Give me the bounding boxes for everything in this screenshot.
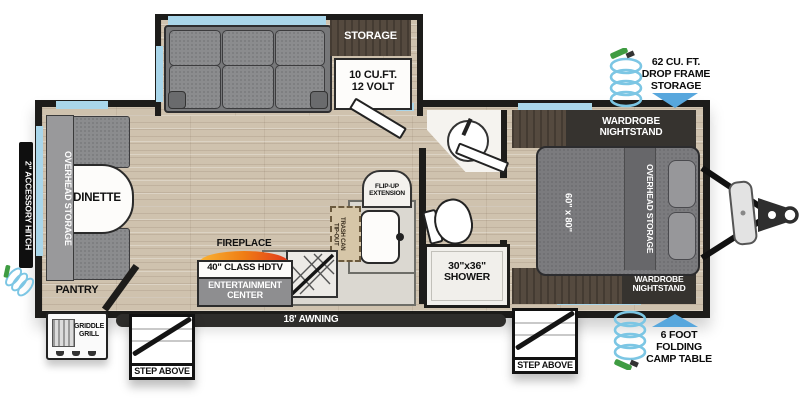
- flip-up-extension: FLIP-UP EXTENSION: [362, 170, 412, 208]
- arrow-up-icon: [652, 314, 698, 328]
- bedroom-dresser-top: [512, 110, 566, 148]
- drop-frame-label-3: STORAGE: [634, 81, 718, 93]
- entry-door-swing: [132, 316, 192, 356]
- ent-center-label-2: CENTER: [199, 291, 291, 301]
- faucet-icon: [462, 118, 473, 136]
- window: [168, 16, 326, 25]
- drop-frame-label-2: DROP FRAME: [634, 69, 718, 81]
- entertainment-center: ENTERTAINMENT CENTER: [197, 277, 293, 307]
- pillow: [668, 212, 696, 260]
- stove: [286, 250, 338, 298]
- refrigerator: 10 CU.FT. 12 VOLT: [334, 58, 412, 110]
- storage-label: STORAGE: [330, 31, 411, 43]
- flipup-label-2: EXTENSION: [364, 190, 410, 197]
- faucet-icon: [396, 233, 404, 241]
- window: [56, 101, 108, 109]
- kitchen-sink: [360, 210, 400, 264]
- griddle-knob: [56, 351, 64, 356]
- coiled-hose-icon: [2, 262, 42, 306]
- dinette-bench: [70, 228, 130, 280]
- dinette-bench: [70, 116, 130, 168]
- accessory-hitch-label: 2" ACCESSORY HITCH: [20, 144, 33, 266]
- drop-frame-label-1: 62 CU. FT.: [634, 57, 718, 69]
- dinette-overhead-label: OVERHEAD STORAGE: [48, 118, 72, 278]
- wardrobe-top-label-2: NIGHTSTAND: [566, 128, 696, 139]
- sofa-armrest: [168, 91, 186, 109]
- entry-door-swing: [515, 310, 575, 350]
- bed: 60" x 80" OVERHEAD STORAGE: [536, 146, 700, 276]
- entry-step: STEP ABOVE: [129, 314, 195, 380]
- fireplace-label: FIREPLACE: [208, 239, 280, 250]
- shower-label: SHOWER: [427, 272, 507, 283]
- trash-label-2: TRASH CAN: [338, 208, 344, 260]
- step-label: STEP ABOVE: [515, 357, 575, 371]
- window: [36, 126, 43, 256]
- hdtv-label: 40" CLASS HDTV: [199, 263, 291, 273]
- griddle-surface-icon: [52, 319, 75, 347]
- flipup-label-1: FLIP-UP: [364, 183, 410, 190]
- fridge-volt-label: 12 VOLT: [336, 82, 410, 94]
- accessory-hitch-bar: 2" ACCESSORY HITCH: [19, 142, 33, 268]
- storage-cabinet: STORAGE: [330, 20, 411, 56]
- coiled-hose-icon: [610, 308, 650, 370]
- sofa-back-cushion: [275, 30, 325, 66]
- floorplan-canvas: STORAGE 10 CU.FT. 12 VOLT DINETTE OVERHE…: [0, 0, 800, 400]
- sofa-seat-cushion: [222, 65, 274, 109]
- griddle-label-1: GRIDDLE: [74, 323, 104, 331]
- entry-step: STEP ABOVE: [512, 308, 578, 374]
- wardrobe-nightstand-top: WARDROBE NIGHTSTAND: [566, 110, 696, 148]
- wardrobe-bottom-label-2: NIGHTSTAND: [622, 284, 696, 293]
- pillow: [668, 160, 696, 208]
- sofa-armrest: [310, 91, 328, 109]
- dinette-overhead-storage: OVERHEAD STORAGE: [46, 115, 74, 281]
- griddle-grill: GRIDDLE GRILL: [46, 312, 108, 360]
- griddle-label-2: GRILL: [74, 331, 104, 339]
- bed-overhead-label: OVERHEAD STORAGE: [626, 150, 654, 268]
- sofa: [164, 25, 332, 113]
- drop-frame-storage-callout: 62 CU. FT. DROP FRAME STORAGE: [634, 57, 718, 92]
- sofa-back-cushion: [169, 30, 221, 66]
- window: [156, 46, 163, 102]
- bed-size-label: 60" x 80": [562, 182, 572, 242]
- step-label: STEP ABOVE: [132, 363, 192, 377]
- bed-overhead-storage: OVERHEAD STORAGE: [624, 148, 656, 270]
- pantry-label: PANTRY: [46, 285, 108, 297]
- griddle-knob: [72, 351, 80, 356]
- tongue-hitch: [700, 140, 800, 280]
- sofa-back-cushion: [222, 30, 274, 66]
- griddle-knob: [88, 351, 96, 356]
- arrow-down-icon: [652, 93, 698, 109]
- shower: 30"x36" SHOWER: [424, 244, 510, 308]
